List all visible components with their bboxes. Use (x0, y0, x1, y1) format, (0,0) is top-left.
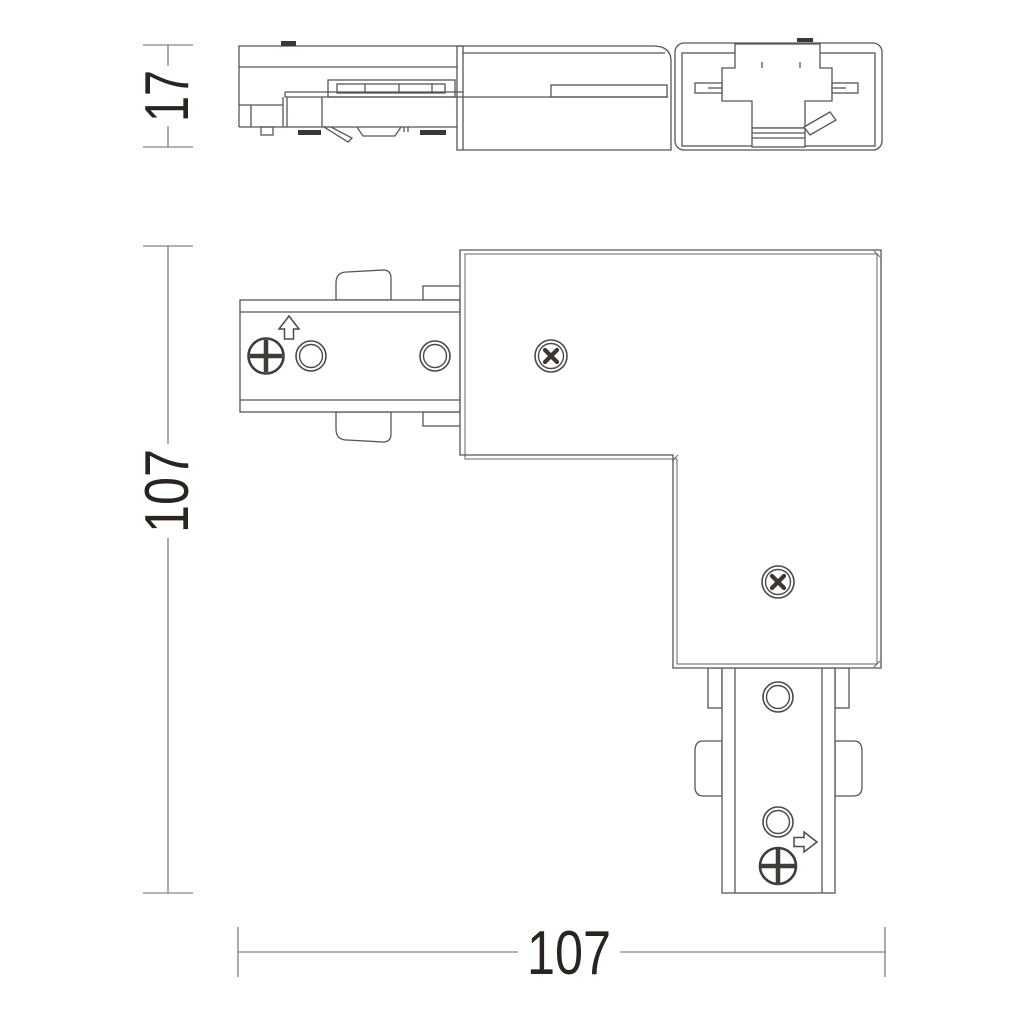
right-contact-bar (551, 85, 667, 97)
arm-flange (708, 668, 722, 708)
side-corner-housing (457, 46, 671, 150)
technical-drawing: 17 107 107 (0, 0, 1024, 1023)
dimension-label-17: 17 (133, 70, 202, 122)
arm-flange (423, 412, 462, 426)
tab-flap (695, 741, 722, 796)
left-terminal-blocks (239, 97, 322, 127)
track-top-tab (797, 38, 813, 42)
mount-hole (420, 341, 450, 371)
connector-body (460, 250, 881, 668)
side-left-arm (239, 41, 668, 142)
tab-flap (336, 270, 391, 300)
side-left-arm-outline (239, 46, 463, 127)
tab-flap (835, 741, 862, 796)
mount-hole (763, 807, 793, 837)
contact-plate (328, 80, 455, 97)
phillips-screw-icon (249, 339, 284, 374)
cross-screw-icon (535, 340, 567, 372)
mount-hole (763, 682, 793, 712)
profile-foot-stack (752, 128, 805, 147)
dimension-plan-height: 107 (133, 246, 202, 893)
plan-view (240, 250, 881, 893)
dimension-label-107-left: 107 (133, 449, 202, 533)
drawing-canvas: 17 107 107 (0, 0, 1024, 1023)
arm-flange (835, 668, 849, 708)
dimension-side-height: 17 (133, 45, 202, 147)
bottom-feet-details (261, 127, 446, 142)
mount-hole (296, 341, 326, 371)
phillips-screw-icon (760, 848, 796, 884)
cross-screw-icon (762, 566, 794, 598)
side-view (239, 38, 882, 150)
latch-spring (804, 112, 836, 135)
track-cross-section (675, 38, 882, 150)
top-tab-bump (281, 41, 296, 46)
housing-outline (457, 46, 671, 150)
dimension-plan-width: 107 (238, 919, 885, 988)
dimension-label-107-bottom: 107 (527, 919, 611, 988)
arm-flange (423, 286, 462, 300)
tab-flap (336, 412, 391, 442)
conductor-profile (722, 44, 832, 128)
